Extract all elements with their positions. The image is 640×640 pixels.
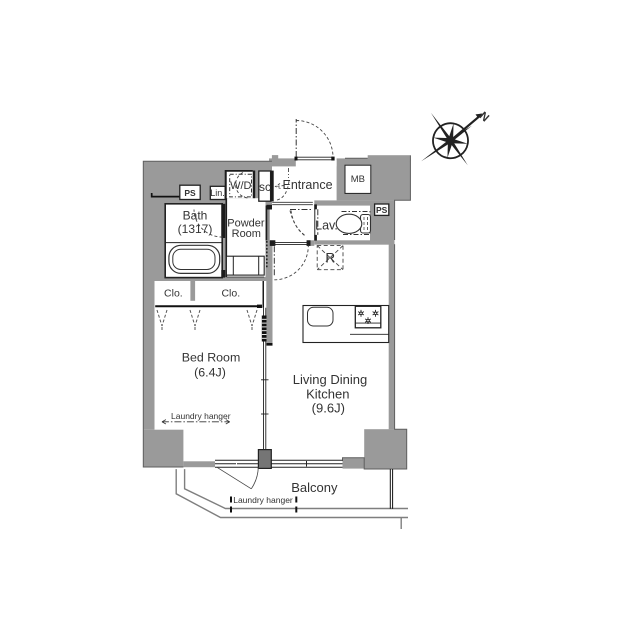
svg-text:Clo.: Clo. xyxy=(221,288,240,300)
svg-text:(1317): (1317) xyxy=(178,222,213,236)
svg-text:Clo.: Clo. xyxy=(164,288,183,300)
svg-text:Laundry hanger: Laundry hanger xyxy=(233,495,293,505)
svg-text:sc: sc xyxy=(259,180,271,194)
svg-text:Balcony: Balcony xyxy=(291,480,338,495)
svg-text:R: R xyxy=(325,251,335,266)
svg-text:Kitchen: Kitchen xyxy=(306,387,349,402)
svg-text:PS: PS xyxy=(376,205,388,215)
svg-text:PS: PS xyxy=(184,188,196,198)
svg-text:Lin.: Lin. xyxy=(210,188,225,198)
svg-text:Entrance: Entrance xyxy=(282,178,332,192)
svg-text:Laundry hanger: Laundry hanger xyxy=(171,411,231,421)
svg-text:Living Dining: Living Dining xyxy=(293,372,367,387)
svg-text:MB: MB xyxy=(351,174,365,185)
svg-text:Room: Room xyxy=(232,228,261,240)
svg-text:(6.4J): (6.4J) xyxy=(194,365,226,379)
svg-text:W/D: W/D xyxy=(230,180,251,192)
svg-text:Bath: Bath xyxy=(183,209,208,223)
svg-text:Bed Room: Bed Room xyxy=(182,351,241,365)
svg-text:(9.6J): (9.6J) xyxy=(312,400,345,415)
svg-text:Lav.: Lav. xyxy=(315,219,338,233)
